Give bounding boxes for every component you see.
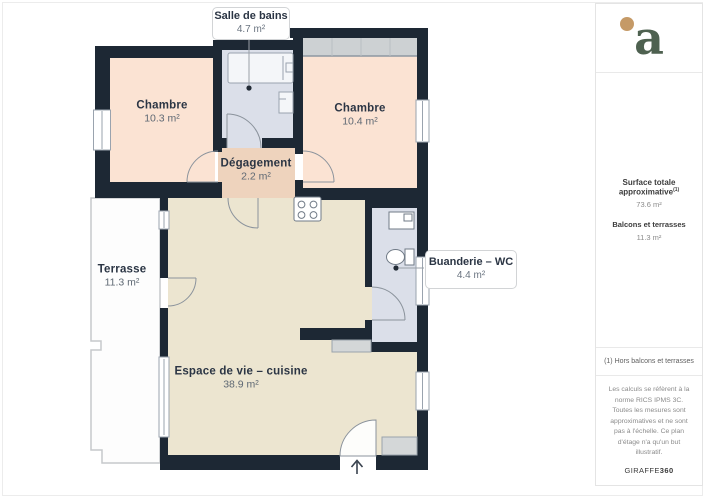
floor-plan-drawing	[0, 0, 595, 498]
footnote-marker: (1)	[673, 187, 679, 193]
total-area-value: 73.6 m²	[636, 200, 661, 209]
terrace-outline	[91, 198, 160, 463]
entry-mat-icon	[382, 437, 417, 455]
callout-buanderie-wc: Buanderie – WC 4.4 m²	[425, 250, 517, 289]
room-area: 4.4 m²	[457, 270, 485, 283]
room-label-terrasse: Terrasse 11.3 m²	[98, 262, 147, 290]
footnote: (1) Hors balcons et terrasses	[596, 347, 702, 375]
toilet-icon	[387, 249, 415, 265]
stove-icon	[294, 197, 321, 221]
balcony-area-value: 11.3 m²	[637, 233, 662, 242]
room-name: Chambre	[136, 98, 187, 112]
room-name: Terrasse	[98, 262, 147, 276]
room-name: Buanderie – WC	[429, 256, 513, 270]
room-area: 10.3 m²	[136, 113, 187, 126]
brand-logo: a	[596, 4, 702, 73]
room-area: 2.2 m²	[220, 171, 291, 184]
room-area: 10.4 m²	[334, 116, 385, 129]
total-area-label: Surface totale approximative(1)	[600, 178, 698, 197]
giraffe360-brand: GIRAFFE360	[605, 466, 693, 475]
room-name: Chambre	[334, 101, 385, 115]
area-summary: Surface totale approximative(1) 73.6 m² …	[596, 73, 702, 347]
info-sidebar: a Surface totale approximative(1) 73.6 m…	[595, 3, 703, 486]
washing-machine-icon	[389, 212, 414, 229]
room-label-degagement: Dégagement 2.2 m²	[220, 156, 291, 184]
logo-a-icon: a	[627, 12, 671, 64]
room-label-espace-de-vie: Espace de vie – cuisine 38.9 m²	[174, 364, 307, 392]
disclaimer: Les calculs se réfèrent à la norme RICS …	[596, 375, 702, 485]
kitchen-counter-icon	[332, 340, 371, 352]
room-label-chambre-1: Chambre 10.3 m²	[136, 98, 187, 126]
room-area: 11.3 m²	[98, 277, 147, 290]
bathtub-icon	[228, 53, 293, 83]
room-name: Espace de vie – cuisine	[174, 364, 307, 378]
bathroom-sink-icon	[279, 92, 293, 113]
room-label-chambre-2: Chambre 10.4 m²	[334, 101, 385, 129]
disclaimer-text: Les calculs se réfèrent à la norme RICS …	[605, 385, 693, 459]
room-name: Dégagement	[220, 156, 291, 170]
balcony-area-label: Balcons et terrasses	[612, 220, 685, 229]
entrance-arrow-icon	[352, 461, 363, 475]
logo-dot-icon	[620, 17, 634, 31]
wardrobe-icon	[303, 38, 417, 56]
room-area: 38.9 m²	[174, 379, 307, 392]
room-name: Salle de bains	[214, 10, 287, 24]
callout-salle-de-bains: Salle de bains 4.7 m²	[212, 7, 290, 40]
floor-plan: Chambre 10.3 m² Chambre 10.4 m² Dégageme…	[0, 0, 595, 498]
room-area: 4.7 m²	[237, 24, 265, 37]
